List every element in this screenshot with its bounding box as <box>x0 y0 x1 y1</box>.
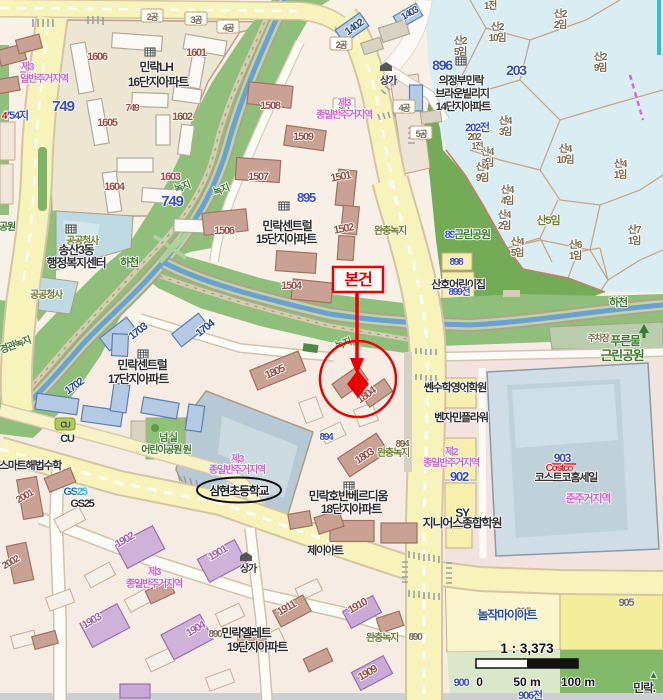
svg-text:1506: 1506 <box>214 225 235 237</box>
svg-text:896: 896 <box>432 57 453 73</box>
svg-text:근린공원: 근린공원 <box>600 348 643 363</box>
svg-text:9임: 9임 <box>594 61 607 74</box>
svg-text:1601: 1601 <box>186 47 207 59</box>
svg-text:14단지아파트: 14단지아파트 <box>436 99 492 113</box>
svg-text:공공청사: 공공청사 <box>30 288 64 301</box>
svg-text:749: 749 <box>52 98 74 115</box>
svg-text:어린이공원 원: 어린이공원 원 <box>141 443 192 456</box>
svg-text:민락호반베르디움: 민락호반베르디움 <box>309 488 389 503</box>
svg-text:4임: 4임 <box>501 194 514 207</box>
svg-text:완충녹지: 완충녹지 <box>377 446 410 459</box>
svg-text:브라운빌리지: 브라운빌리지 <box>435 86 489 100</box>
svg-text:902: 902 <box>450 469 469 484</box>
svg-text:산2: 산2 <box>491 20 505 33</box>
svg-text:1임: 1임 <box>628 234 641 247</box>
svg-text:일반주거지역: 일반주거지역 <box>20 72 69 85</box>
svg-text:놀작마이아트: 놀작마이아트 <box>477 607 537 622</box>
svg-text:근린공원: 근린공원 <box>454 227 491 241</box>
svg-text:CU: CU <box>60 433 75 445</box>
svg-text:1임: 1임 <box>614 168 627 181</box>
svg-text:산5임: 산5임 <box>537 213 560 227</box>
svg-text:17단지아파트: 17단지아파트 <box>108 371 169 386</box>
svg-text:산7: 산7 <box>628 223 642 236</box>
svg-text:1504: 1504 <box>281 280 303 292</box>
svg-text:제3: 제3 <box>231 452 245 465</box>
svg-text:1509: 1509 <box>293 131 314 143</box>
svg-text:종일반주거지역: 종일반주거지역 <box>316 108 373 121</box>
svg-text:5임: 5임 <box>511 246 524 259</box>
svg-text:산6: 산6 <box>569 238 583 251</box>
svg-text:지니어스종합학원: 지니어스종합학원 <box>423 515 502 530</box>
svg-text:1604: 1604 <box>104 181 126 193</box>
svg-text:1606: 1606 <box>87 51 108 63</box>
svg-text:민락엘레트: 민락엘레트 <box>221 625 271 640</box>
svg-text:GS25: GS25 <box>70 498 94 510</box>
svg-text:완충녹지: 완충녹지 <box>374 224 407 237</box>
svg-text:895: 895 <box>297 190 316 205</box>
svg-text:종일반주거지역: 종일반주거지역 <box>126 577 183 590</box>
svg-text:894: 894 <box>319 432 334 443</box>
svg-text:스마트해법수학: 스마트해법수학 <box>0 458 62 472</box>
svg-text:본건: 본건 <box>344 271 372 289</box>
svg-text:GS25: GS25 <box>63 486 87 498</box>
svg-text:종일반주거지역: 종일반주거지역 <box>423 456 480 469</box>
svg-text:1임: 1임 <box>569 249 582 262</box>
svg-text:산4: 산4 <box>614 157 628 170</box>
svg-text:▲: ▲ <box>649 670 658 681</box>
svg-text:899전: 899전 <box>448 285 470 298</box>
svg-text:상가: 상가 <box>380 74 398 87</box>
svg-text:제이아트: 제이아트 <box>307 543 344 557</box>
svg-text:코스트코홈세일: 코스트코홈세일 <box>535 470 599 484</box>
svg-text:산2: 산2 <box>554 7 568 20</box>
svg-text:890: 890 <box>408 632 423 643</box>
svg-text:산4: 산4 <box>499 114 513 127</box>
svg-text:749: 749 <box>161 193 183 210</box>
svg-text:산2: 산2 <box>594 50 608 63</box>
svg-text:900: 900 <box>454 677 470 689</box>
svg-text:203: 203 <box>506 62 527 78</box>
svg-text:1전: 1전 <box>484 0 497 12</box>
svg-text:19단지아파트: 19단지아파트 <box>227 639 288 654</box>
svg-text:제2: 제2 <box>445 445 459 458</box>
svg-text:1전: 1전 <box>472 140 484 151</box>
svg-text:상가: 상가 <box>240 562 258 575</box>
svg-text:1 : 3,373: 1 : 3,373 <box>500 641 554 656</box>
svg-text:2임: 2임 <box>554 18 567 31</box>
svg-text:하천: 하천 <box>120 255 139 269</box>
svg-text:산4: 산4 <box>476 160 490 173</box>
svg-text:산4: 산4 <box>481 145 495 158</box>
svg-text:송산3동: 송산3동 <box>59 242 95 257</box>
svg-text:2임: 2임 <box>498 219 511 232</box>
svg-text:CU: CU <box>60 421 71 430</box>
svg-text:의정부민락: 의정부민락 <box>439 73 485 87</box>
svg-text:산4: 산4 <box>501 183 515 196</box>
svg-text:4공: 4공 <box>223 23 235 33</box>
svg-text:제3: 제3 <box>338 96 352 109</box>
svg-text:민락센트럴: 민락센트럴 <box>117 357 167 372</box>
svg-text:100 m: 100 m <box>561 675 595 689</box>
svg-text:산2: 산2 <box>454 34 468 47</box>
svg-text:898: 898 <box>449 257 464 268</box>
svg-text:906전: 906전 <box>518 688 543 700</box>
svg-text:민락LH: 민락LH <box>139 59 173 74</box>
svg-text:공원: 공원 <box>0 220 16 233</box>
svg-text:18단지아파트: 18단지아파트 <box>321 501 382 516</box>
svg-text:1605: 1605 <box>97 117 118 129</box>
svg-text:1602: 1602 <box>172 111 193 123</box>
svg-text:제3: 제3 <box>148 565 162 578</box>
svg-text:3공: 3공 <box>191 15 203 25</box>
svg-text:16단지아파트: 16단지아파트 <box>128 74 189 89</box>
svg-text:준주거지역: 준주거지역 <box>566 491 611 505</box>
svg-text:1508: 1508 <box>260 100 281 112</box>
svg-text:민락.: 민락. <box>633 680 656 695</box>
svg-text:넘 실: 넘 실 <box>159 431 178 444</box>
svg-text:754지: 754지 <box>4 108 28 122</box>
svg-text:50 m: 50 m <box>513 675 540 689</box>
svg-text:푸른물: 푸른물 <box>610 334 641 348</box>
svg-text:3임: 3임 <box>499 125 512 138</box>
svg-text:1507: 1507 <box>248 171 269 183</box>
svg-text:주차장: 주차장 <box>587 332 610 343</box>
svg-text:쎈수학영어학원: 쎈수학영어학원 <box>424 380 488 394</box>
svg-text:하천: 하천 <box>609 295 628 309</box>
svg-text:벤자민플라워: 벤자민플라워 <box>434 410 488 424</box>
svg-text:5공: 5공 <box>416 129 428 139</box>
svg-text:행정복지센터: 행정복지센터 <box>46 255 105 270</box>
svg-text:749: 749 <box>125 103 140 114</box>
svg-text:제3: 제3 <box>21 60 35 73</box>
svg-text:10임: 10임 <box>489 31 507 44</box>
svg-text:905: 905 <box>619 597 635 609</box>
svg-text:2공: 2공 <box>336 40 348 50</box>
svg-text:산4: 산4 <box>498 208 512 221</box>
svg-text:산4: 산4 <box>511 235 525 248</box>
svg-text:15단지아파트: 15단지아파트 <box>256 231 317 246</box>
svg-text:완충녹지: 완충녹지 <box>366 631 399 644</box>
svg-text:2공: 2공 <box>147 12 159 22</box>
svg-text:종일반주거지역: 종일반주거지역 <box>209 463 266 476</box>
svg-text:산4: 산4 <box>559 142 573 155</box>
svg-text:삼현초등학교: 삼현초등학교 <box>209 483 269 498</box>
svg-text:1603: 1603 <box>160 171 181 183</box>
svg-text:5임: 5임 <box>454 45 467 58</box>
svg-text:4공: 4공 <box>399 103 411 113</box>
svg-text:민락센트럴: 민락센트럴 <box>262 218 312 233</box>
svg-text:9임: 9임 <box>476 171 489 184</box>
svg-text:10임: 10임 <box>557 153 575 166</box>
